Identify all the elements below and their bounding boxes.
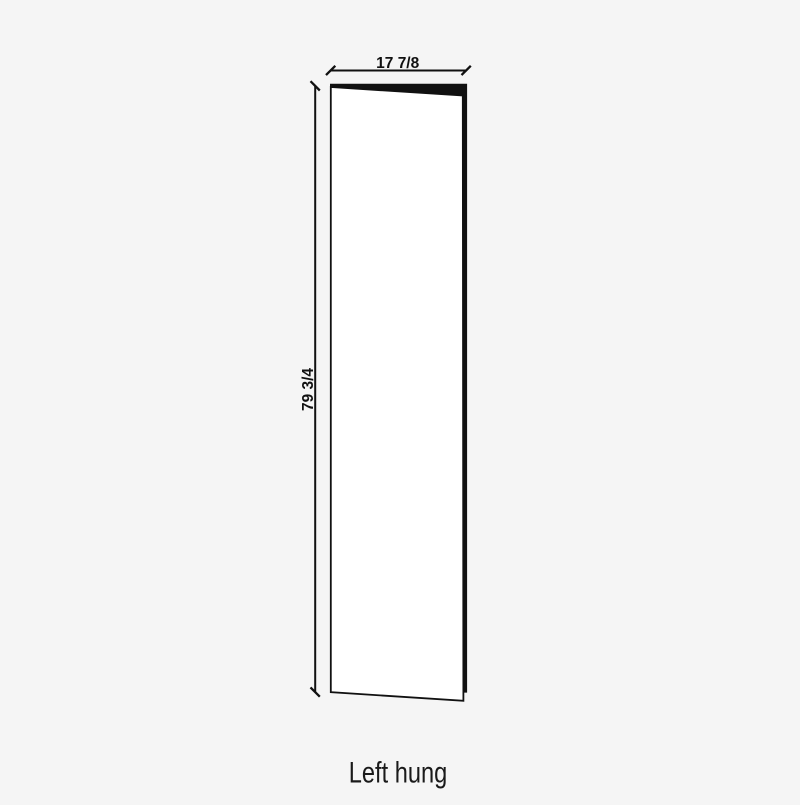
- svg-text:Left hung: Left hung: [349, 756, 447, 789]
- svg-text:79 3/4: 79 3/4: [300, 368, 317, 411]
- svg-text:17 7/8: 17 7/8: [376, 55, 419, 72]
